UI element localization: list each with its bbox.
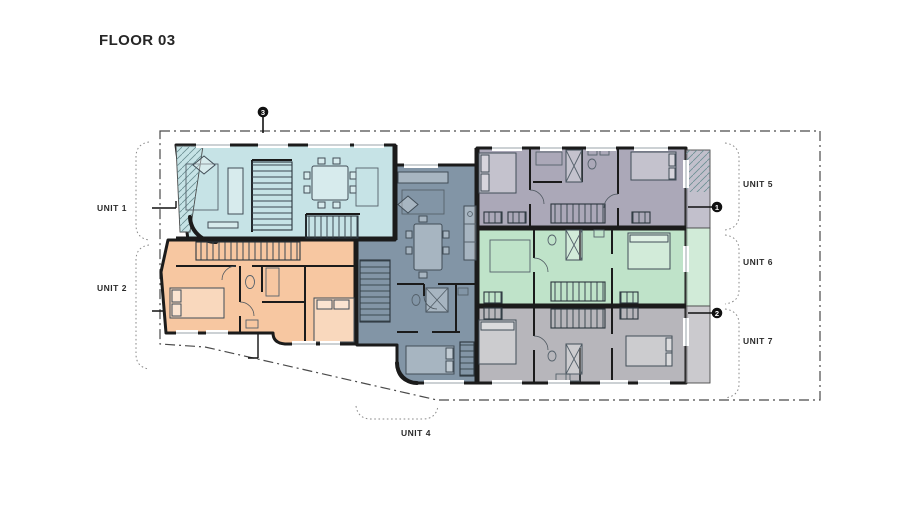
dining-table-symbol: [312, 166, 348, 200]
wardrobe-symbol: [508, 212, 526, 223]
wardrobe-symbol: [620, 292, 638, 303]
dining-table-symbol: [414, 224, 442, 270]
svg-text:2: 2: [715, 309, 719, 318]
unit-5-brace: [725, 143, 739, 230]
bed-symbol: [626, 336, 672, 366]
wardrobe-symbol: [484, 308, 502, 319]
unit-7-label: UNIT 7: [743, 336, 773, 346]
marker-3: 3: [258, 107, 269, 133]
unit-1-label: UNIT 1: [97, 203, 127, 213]
balcony-strips: [686, 150, 710, 383]
unit-5-label: UNIT 5: [743, 179, 773, 189]
unit-6-label: UNIT 6: [743, 257, 773, 267]
unit-2-brace: [136, 245, 149, 369]
sofa-symbol: [228, 168, 243, 214]
sofa-symbol: [398, 172, 448, 183]
wardrobe-symbol: [460, 342, 474, 376]
unit-2-label: UNIT 2: [97, 283, 127, 293]
unit-6-brace: [725, 235, 739, 304]
svg-text:3: 3: [261, 108, 265, 117]
svg-text:1: 1: [715, 203, 719, 212]
unit-1-brace: [136, 142, 149, 240]
cabinet-symbol: [208, 222, 238, 228]
wardrobe-symbol: [620, 308, 638, 319]
wardrobe-symbol: [484, 212, 502, 223]
unit-4-brace: [356, 406, 438, 419]
floor-plan-page: FLOOR 03: [0, 0, 900, 530]
wardrobe-symbol: [484, 292, 502, 303]
unit-7-brace: [725, 309, 739, 398]
floor-plan-svg: FLOOR 03: [0, 0, 900, 530]
wardrobe-symbol: [632, 212, 650, 223]
page-title: FLOOR 03: [99, 32, 176, 49]
unit-4-label: UNIT 4: [401, 428, 431, 438]
kitchen-counter-symbol: [464, 206, 476, 260]
